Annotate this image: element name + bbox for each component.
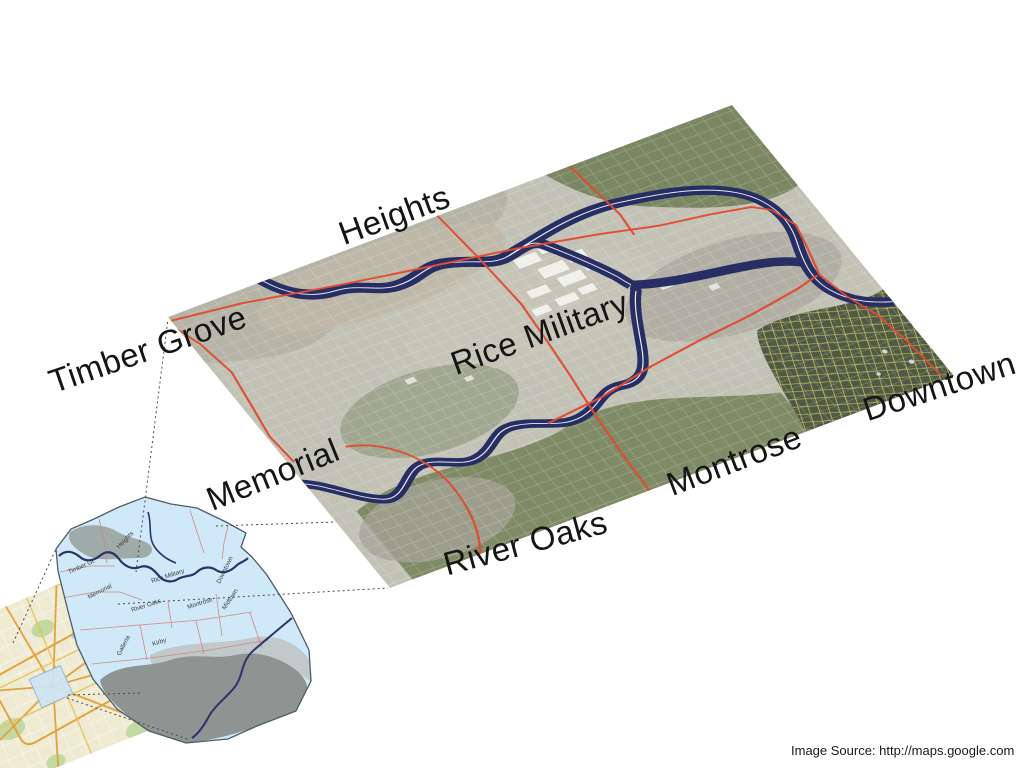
slide: Heights Timber Gr. Rice Military Downtow…	[0, 0, 1024, 768]
leader-line	[216, 522, 336, 526]
source-credit: Image Source: http://maps.google.com	[791, 743, 1014, 758]
slide-graphic: Heights Timber Gr. Rice Military Downtow…	[0, 0, 1024, 768]
